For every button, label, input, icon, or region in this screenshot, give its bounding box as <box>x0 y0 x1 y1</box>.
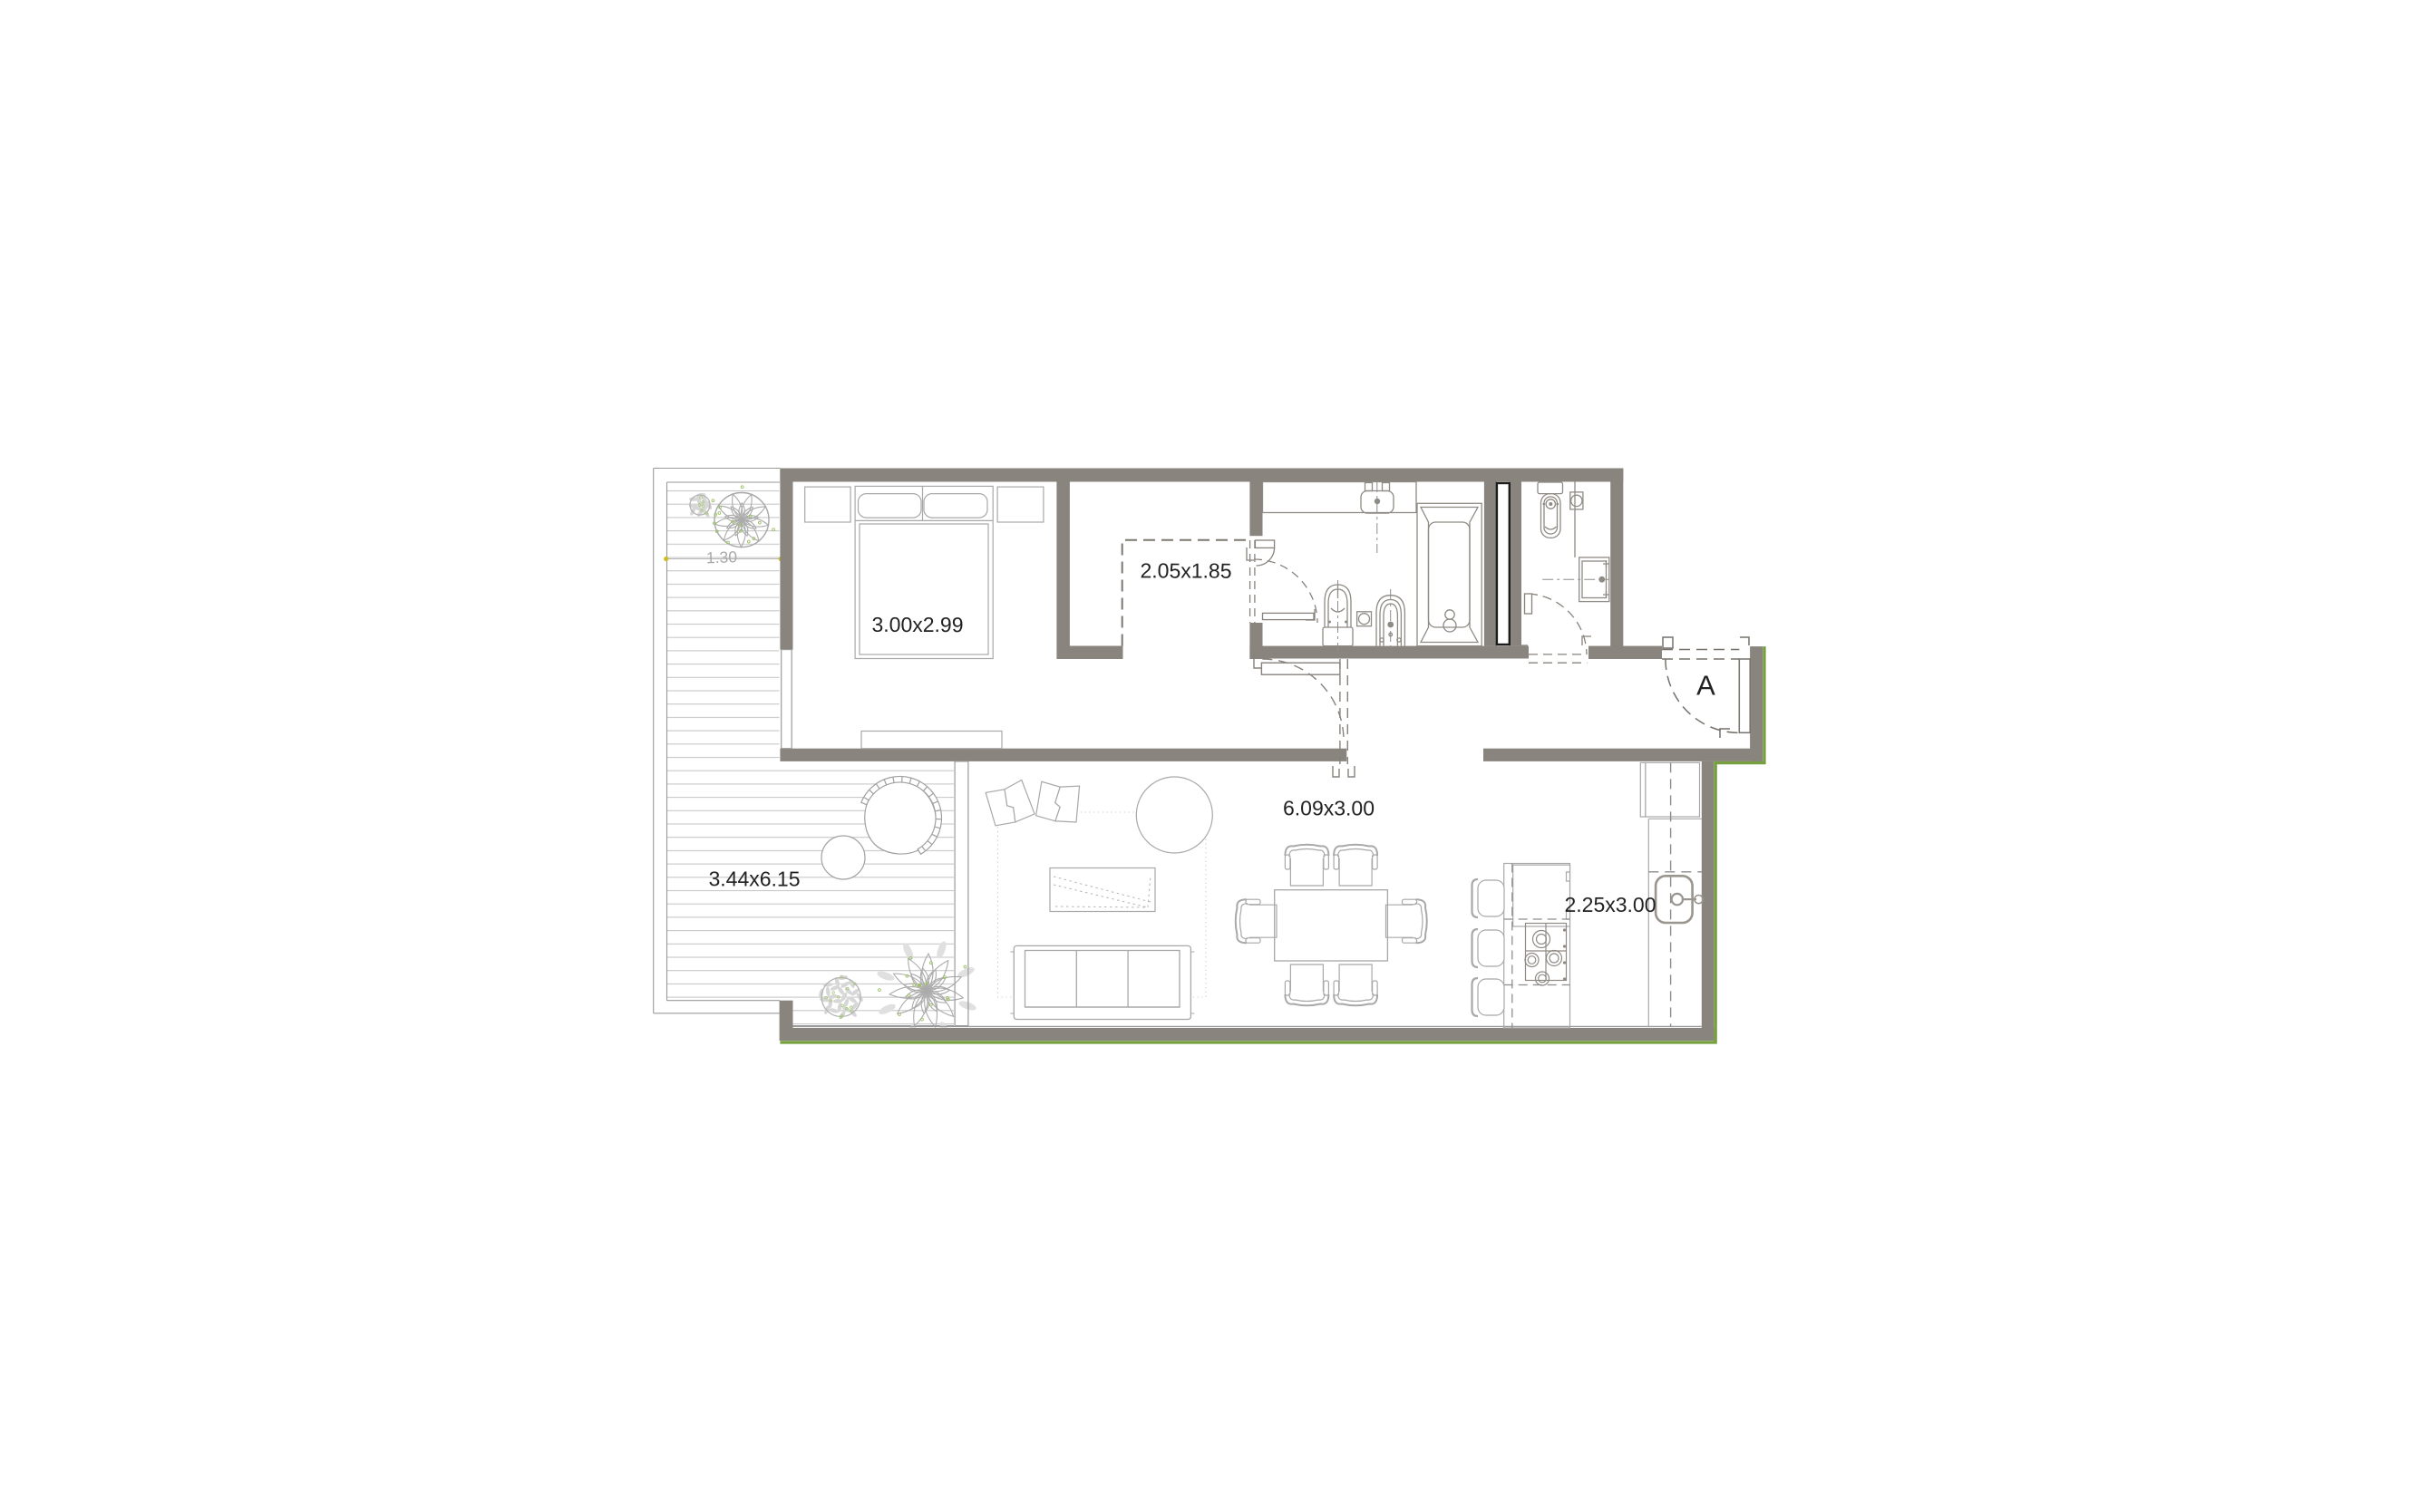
svg-text:1.30: 1.30 <box>706 548 738 567</box>
svg-text:3.44x6.15: 3.44x6.15 <box>708 867 800 890</box>
svg-text:6.09x3.00: 6.09x3.00 <box>1283 796 1375 819</box>
svg-text:2.05x1.85: 2.05x1.85 <box>1140 558 1231 582</box>
svg-text:3.00x2.99: 3.00x2.99 <box>871 613 963 636</box>
svg-text:A: A <box>1696 670 1715 702</box>
svg-text:2.25x3.00: 2.25x3.00 <box>1564 893 1656 916</box>
